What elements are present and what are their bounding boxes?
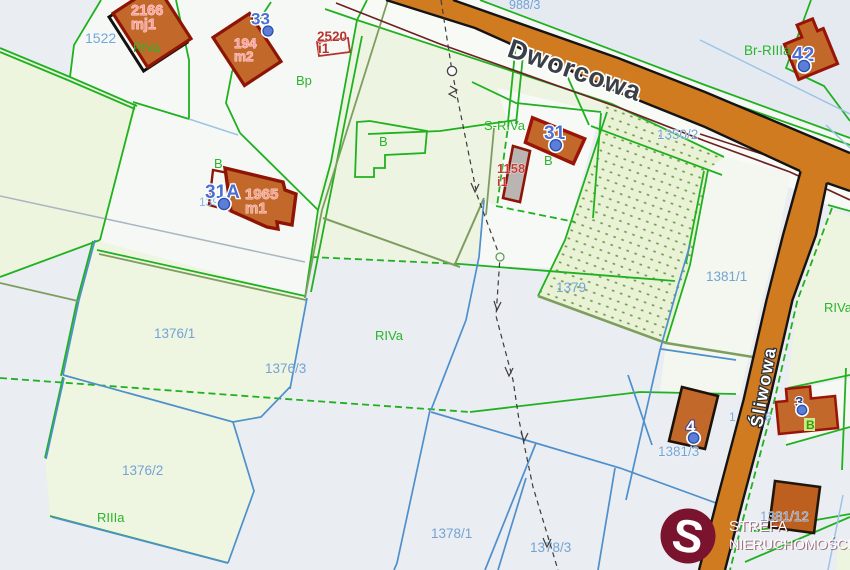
svg-text:1350/2: 1350/2 (657, 127, 698, 142)
svg-text:i1: i1 (497, 174, 508, 189)
svg-text:6: 6 (765, 410, 772, 424)
svg-text:1376/1: 1376/1 (154, 326, 195, 341)
svg-text:1381/3: 1381/3 (658, 444, 699, 459)
svg-text:1376/2: 1376/2 (122, 463, 163, 478)
svg-text:m1: m1 (245, 200, 267, 217)
svg-text:i1: i1 (318, 41, 330, 56)
svg-text:S-RIVa: S-RIVa (484, 118, 526, 133)
svg-text:1379: 1379 (556, 280, 586, 295)
svg-text:1522: 1522 (85, 30, 116, 46)
svg-text:1378/1: 1378/1 (431, 526, 472, 541)
svg-text:NIERUCHOMOŚCI: NIERUCHOMOŚCI (729, 535, 850, 553)
svg-text:Bp: Bp (296, 73, 312, 88)
svg-text:RIVa: RIVa (824, 300, 850, 315)
svg-text:RIIIa: RIIIa (97, 510, 125, 525)
svg-text:B: B (806, 418, 815, 432)
svg-text:RIVa: RIVa (375, 328, 404, 343)
svg-text:988/3: 988/3 (509, 0, 540, 12)
svg-text:RIVa: RIVa (133, 41, 160, 55)
svg-text:B: B (544, 153, 553, 168)
svg-text:B: B (214, 156, 223, 171)
svg-text:mj1: mj1 (131, 17, 156, 33)
svg-text:STREFA: STREFA (729, 518, 787, 535)
svg-text:B: B (379, 134, 388, 149)
svg-text:Br-RIIIa: Br-RIIIa (744, 43, 791, 58)
svg-text:1: 1 (729, 410, 736, 424)
svg-text:1376/3: 1376/3 (265, 361, 306, 376)
svg-text:1381/1: 1381/1 (706, 269, 747, 284)
svg-text:m2: m2 (234, 49, 254, 64)
